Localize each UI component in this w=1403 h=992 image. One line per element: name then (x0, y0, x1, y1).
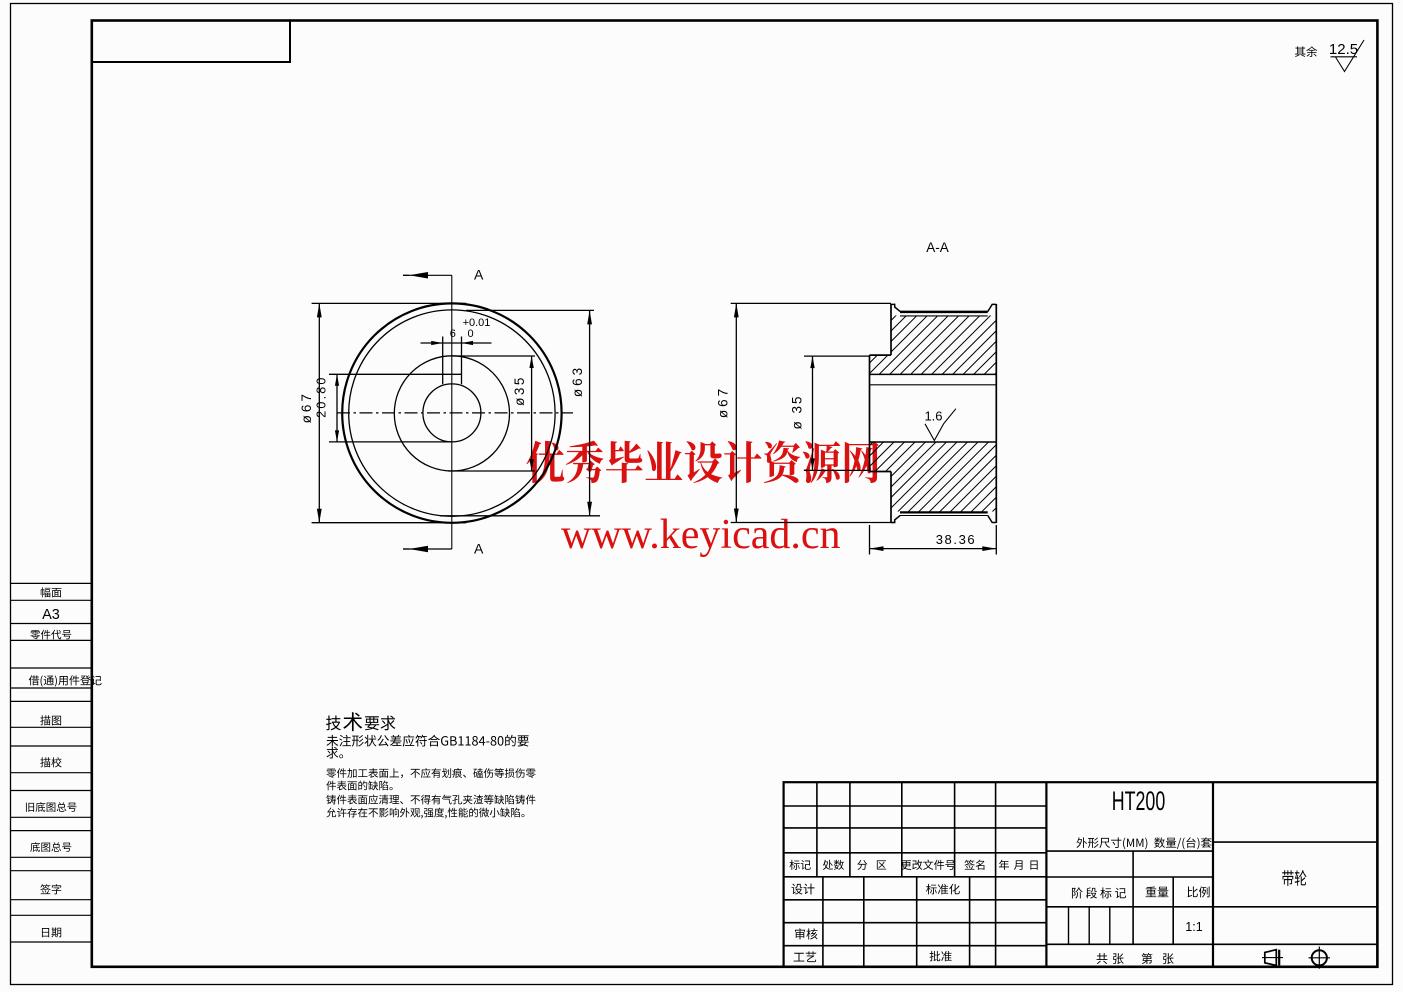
svg-text:ø67: ø67 (716, 386, 731, 418)
svg-text:A3: A3 (42, 607, 60, 623)
svg-text:1:1: 1:1 (1185, 920, 1202, 934)
svg-text:www.keyicad.cn: www.keyicad.cn (561, 512, 841, 558)
svg-text:38.36: 38.36 (936, 532, 977, 547)
svg-text:A: A (474, 541, 484, 557)
svg-text:1.6: 1.6 (924, 409, 942, 424)
svg-text:ø67: ø67 (299, 391, 314, 423)
svg-text:20.80: 20.80 (315, 375, 329, 417)
svg-text:+0.01: +0.01 (463, 317, 491, 329)
svg-text:12.5: 12.5 (1329, 41, 1358, 58)
svg-text:ø35: ø35 (512, 375, 527, 406)
svg-text:ø63: ø63 (570, 365, 585, 397)
svg-text:0: 0 (467, 328, 473, 340)
svg-text:HT200: HT200 (1112, 785, 1165, 816)
svg-text:A-A: A-A (926, 240, 949, 255)
svg-text:6: 6 (450, 328, 456, 340)
svg-text:ø 35: ø 35 (790, 394, 805, 429)
svg-text:A: A (474, 267, 484, 283)
